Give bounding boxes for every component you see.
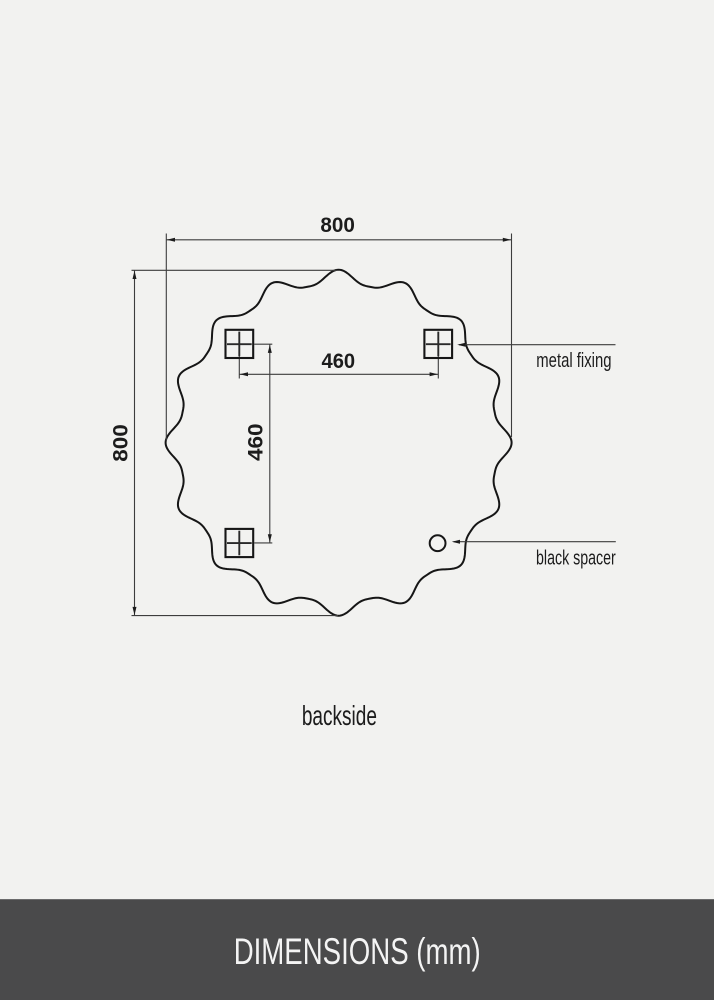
svg-text:800: 800 (320, 213, 355, 237)
svg-text:metal fixing: metal fixing (536, 350, 611, 372)
svg-text:460: 460 (243, 423, 267, 461)
svg-text:black spacer: black spacer (536, 547, 616, 569)
svg-text:backside: backside (302, 700, 377, 731)
svg-text:DIMENSIONS (mm): DIMENSIONS (mm) (234, 931, 481, 972)
svg-text:460: 460 (322, 349, 356, 373)
svg-text:800: 800 (108, 424, 132, 462)
